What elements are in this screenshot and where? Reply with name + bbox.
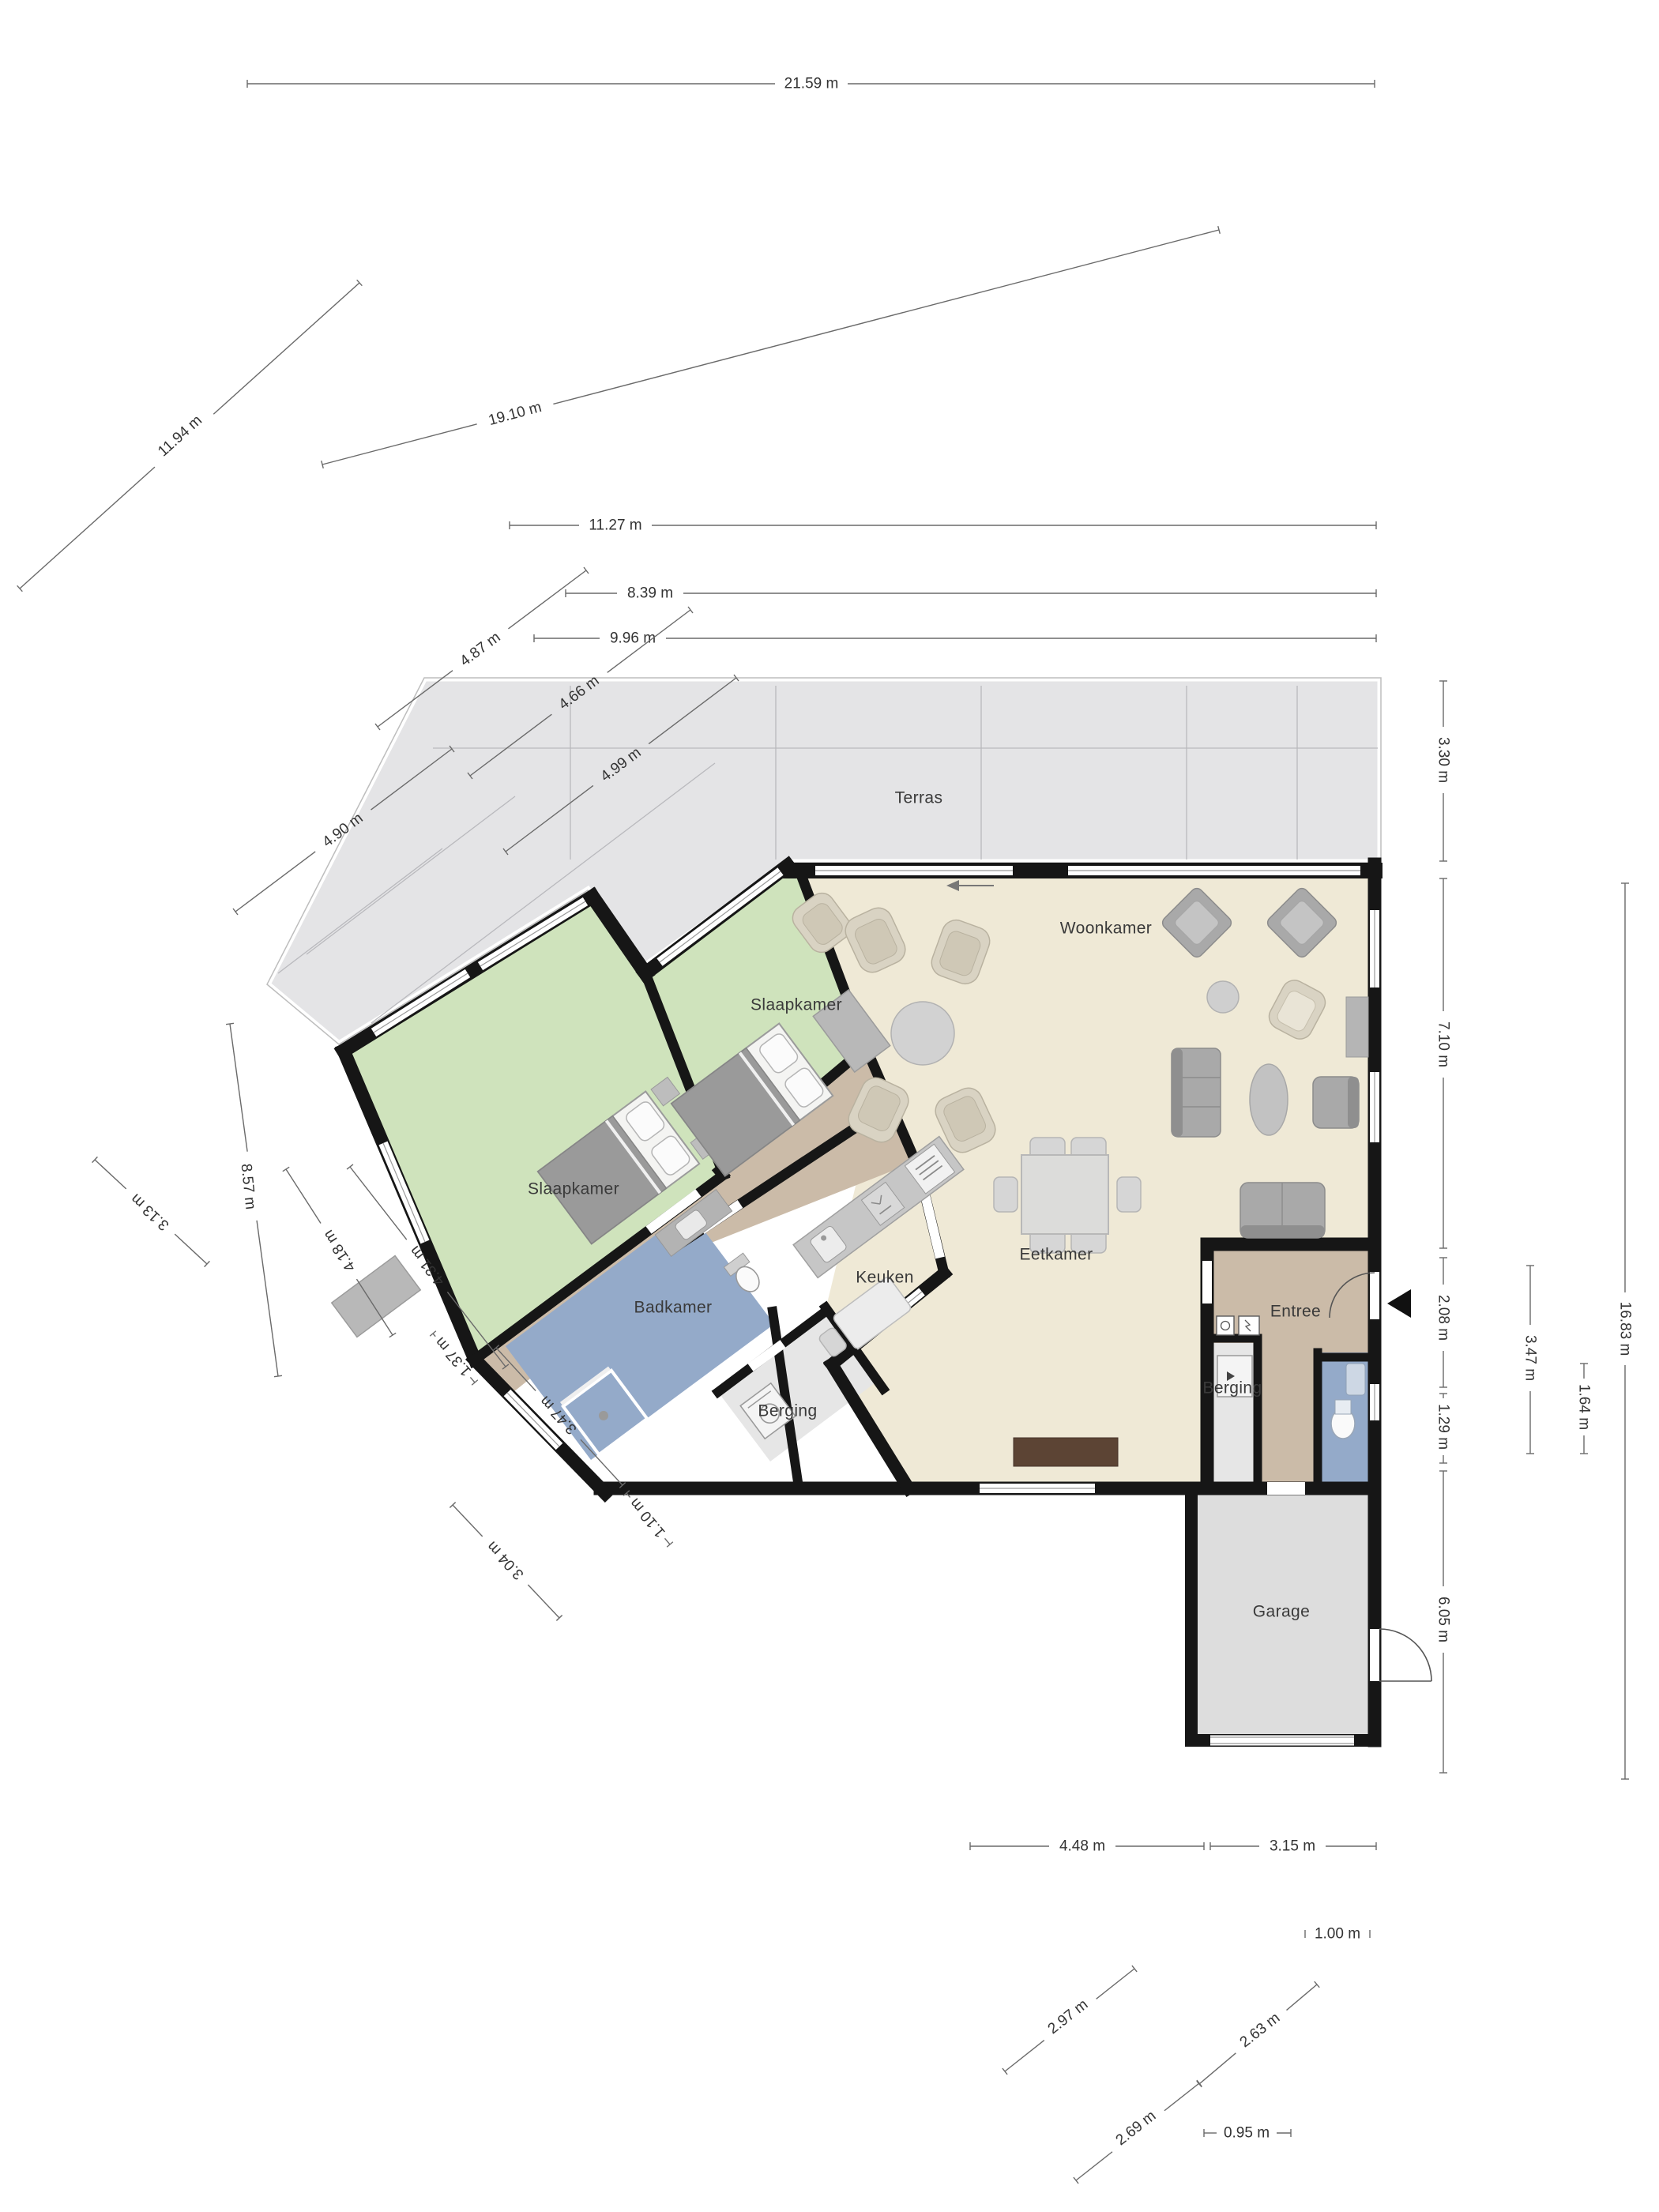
dim-d315: 3.15 m: [1270, 1838, 1315, 1855]
dim-d1683: 16.83 m: [1617, 1302, 1634, 1356]
dim-d297: 2.97 m: [1045, 1996, 1092, 2037]
garage-side-door-arc: [1379, 1629, 1431, 1681]
dim-d347r: 3.47 m: [1522, 1335, 1539, 1381]
dim-d1910: 19.10 m: [487, 399, 544, 429]
floorplan-page: TerrasWoonkamerSlaapkamerSlaapkamerBadka…: [0, 0, 1659, 2212]
side-table: [1207, 981, 1239, 1013]
entree-garage-door-gap: [1267, 1482, 1305, 1495]
dim-d263: 2.63 m: [1237, 2010, 1284, 2051]
armchair-right: [1313, 1077, 1359, 1128]
label-woonkamer: Woonkamer: [1060, 920, 1152, 938]
dim-d996: 9.96 m: [610, 630, 656, 647]
dim-d269: 2.69 m: [1113, 2108, 1160, 2149]
dim-d164: 1.64 m: [1576, 1384, 1593, 1430]
dim-d110: 1.10 m: [626, 1495, 668, 1540]
label-garage: Garage: [1253, 1603, 1310, 1621]
dim-d448: 4.48 m: [1059, 1838, 1105, 1855]
dim-d2159: 21.59 m: [784, 76, 839, 92]
label-eetkamer: Eetkamer: [1019, 1246, 1093, 1264]
label-keuken: Keuken: [856, 1269, 914, 1287]
dim-d100: 1.00 m: [1315, 1926, 1360, 1943]
entrance-arrow-icon: [1387, 1289, 1411, 1318]
label-entree: Entree: [1270, 1303, 1321, 1321]
dim-d1194: 11.94 m: [155, 412, 205, 461]
label-berging_wing: Berging: [758, 1402, 817, 1420]
label-slaapkamer_right: Slaapkamer: [750, 996, 842, 1014]
label-berging_entree: Berging: [1202, 1379, 1262, 1398]
dim-d1127: 11.27 m: [589, 517, 641, 534]
tv-board: [1346, 997, 1368, 1057]
label-badkamer: Badkamer: [634, 1299, 713, 1317]
label-terras: Terras: [895, 789, 943, 807]
dim-d857: 8.57 m: [238, 1163, 259, 1210]
coffee-table: [1250, 1064, 1288, 1135]
dim-d313: 3.13 m: [128, 1191, 173, 1234]
dim-d129: 1.29 m: [1435, 1404, 1452, 1450]
sideboard: [1014, 1438, 1118, 1466]
sofa: [1172, 1048, 1221, 1137]
dim-d304: 3.04 m: [484, 1538, 528, 1583]
dim-d839: 8.39 m: [627, 585, 673, 602]
dim-d208: 2.08 m: [1435, 1295, 1452, 1341]
garage-door: [1210, 1737, 1354, 1744]
dim-d710: 7.10 m: [1435, 1021, 1452, 1067]
dim-d095: 0.95 m: [1224, 2125, 1270, 2142]
loveseat: [1240, 1183, 1325, 1238]
dining-table: [1021, 1155, 1108, 1234]
floorplan-svg: TerrasWoonkamerSlaapkamerSlaapkamerBadka…: [0, 0, 1659, 2212]
label-slaapkamer_left: Slaapkamer: [528, 1180, 619, 1198]
dim-d605: 6.05 m: [1435, 1597, 1452, 1642]
round-table: [891, 1002, 954, 1065]
dim-d330: 3.30 m: [1435, 737, 1452, 783]
dim-d487: 4.87 m: [457, 629, 503, 670]
dim-d418: 4.18 m: [320, 1227, 359, 1274]
